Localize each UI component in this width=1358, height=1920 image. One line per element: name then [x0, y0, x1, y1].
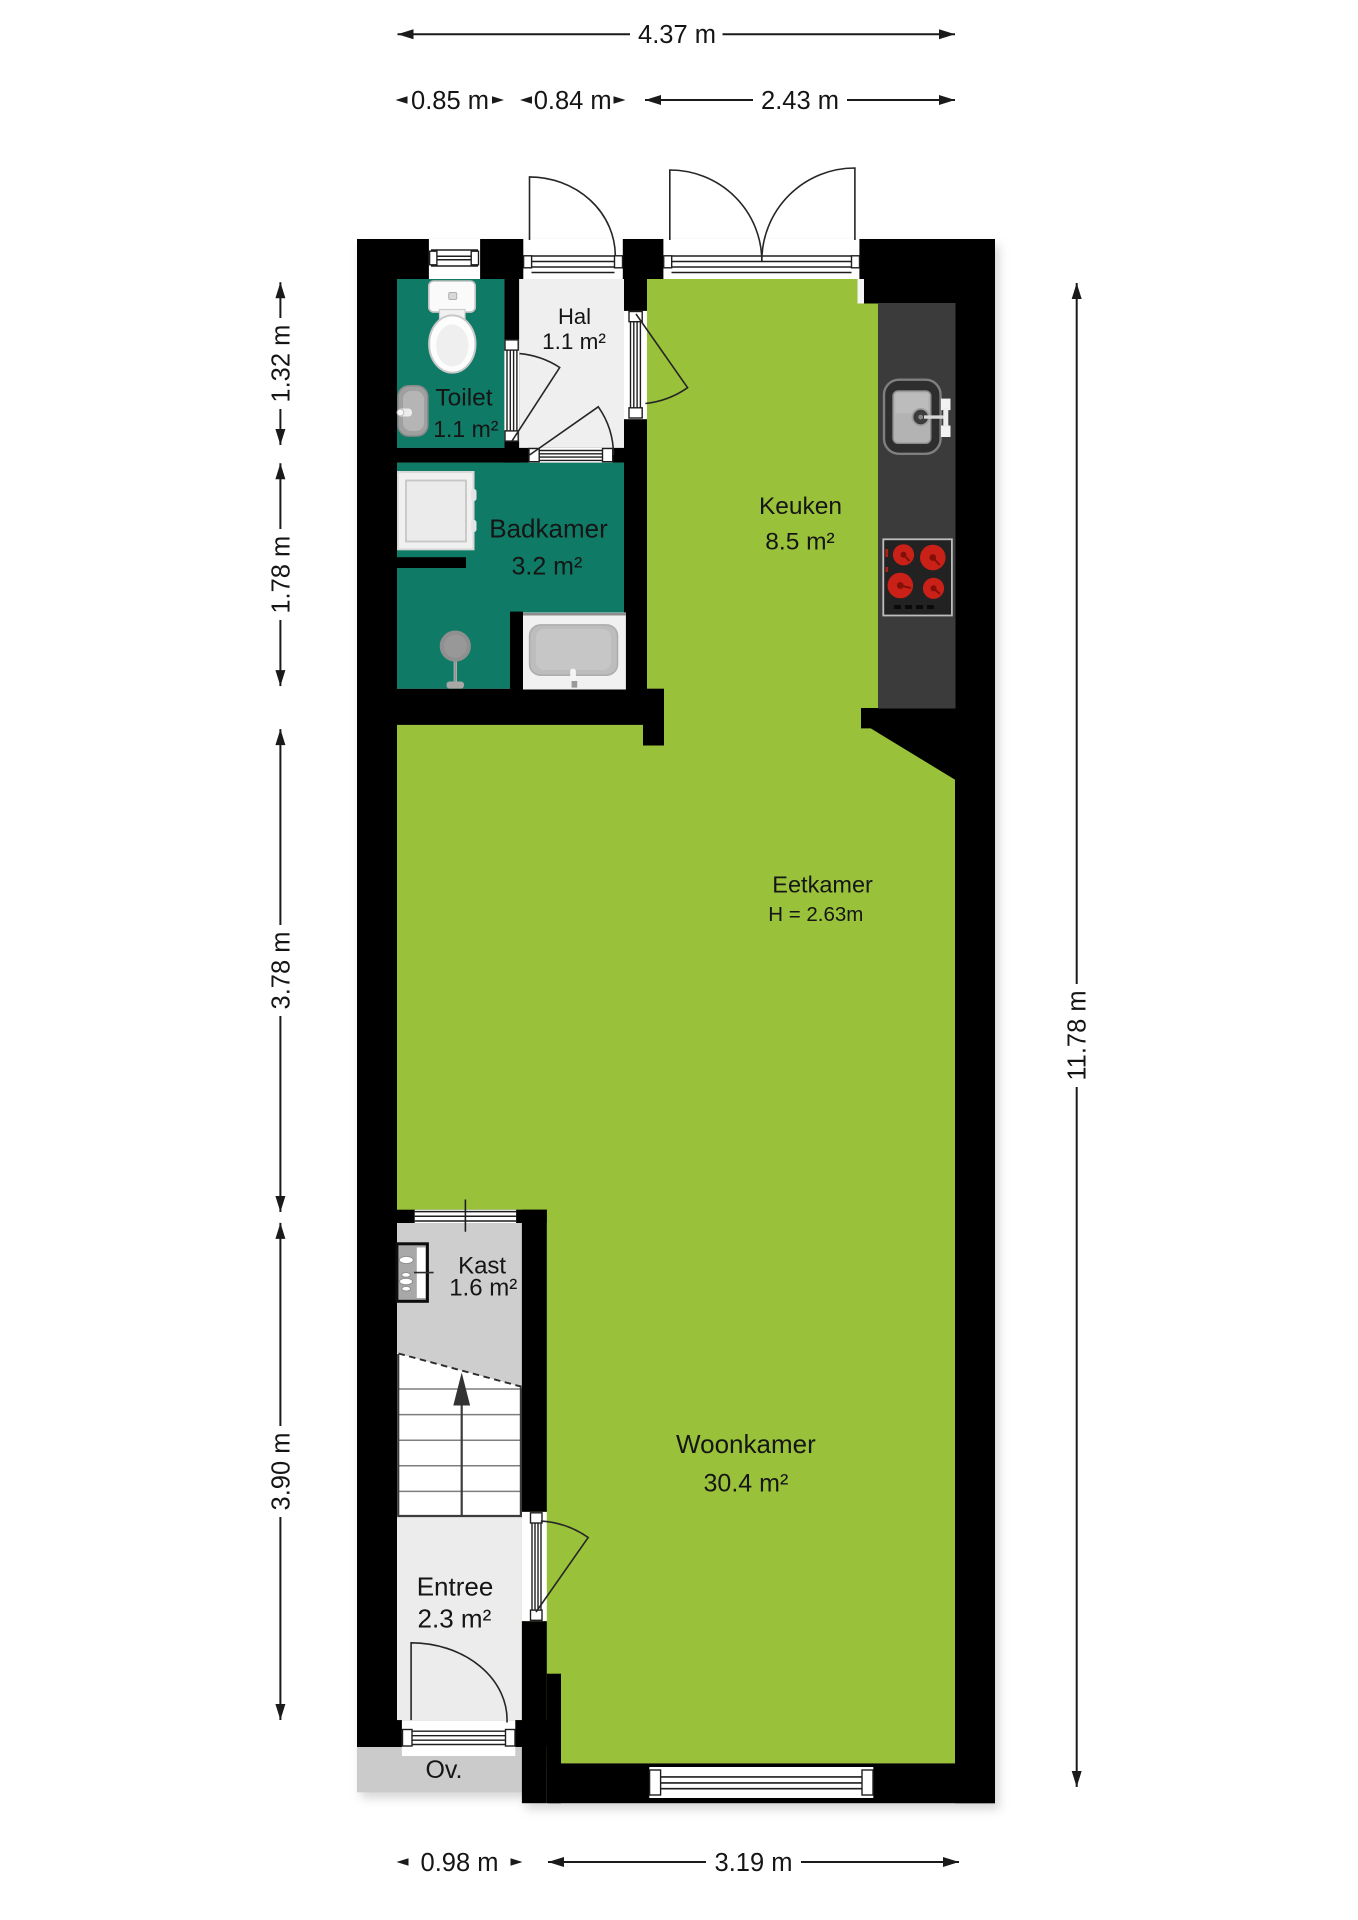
svg-text:4.37 m: 4.37 m — [638, 21, 716, 49]
svg-text:8.5 m²: 8.5 m² — [765, 528, 834, 555]
svg-text:1.32 m: 1.32 m — [267, 325, 295, 403]
svg-text:Woonkamer: Woonkamer — [676, 1429, 816, 1459]
svg-text:1.78 m: 1.78 m — [267, 536, 295, 614]
svg-text:Hal: Hal — [558, 304, 591, 329]
svg-text:Ov.: Ov. — [425, 1756, 462, 1784]
svg-text:0.85 m: 0.85 m — [411, 87, 489, 115]
svg-text:Keuken: Keuken — [759, 493, 842, 520]
svg-text:Entree: Entree — [417, 1571, 494, 1601]
svg-text:3.19 m: 3.19 m — [715, 1849, 793, 1877]
svg-text:2.43 m: 2.43 m — [761, 87, 839, 115]
svg-text:2.3 m²: 2.3 m² — [418, 1603, 492, 1633]
svg-text:3.78 m: 3.78 m — [267, 932, 295, 1010]
svg-text:3.2 m²: 3.2 m² — [511, 553, 582, 581]
svg-text:0.84 m: 0.84 m — [534, 87, 612, 115]
svg-text:H = 2.63m: H = 2.63m — [768, 903, 863, 926]
svg-text:Eetkamer: Eetkamer — [772, 872, 873, 898]
svg-text:3.90 m: 3.90 m — [267, 1433, 295, 1511]
svg-text:Toilet: Toilet — [435, 385, 492, 412]
svg-text:1.1 m²: 1.1 m² — [542, 329, 606, 354]
svg-text:Badkamer: Badkamer — [489, 513, 608, 543]
svg-text:1.6 m²: 1.6 m² — [449, 1275, 517, 1302]
svg-text:11.78 m: 11.78 m — [1064, 990, 1092, 1080]
svg-text:1.1 m²: 1.1 m² — [433, 416, 499, 442]
svg-text:30.4 m²: 30.4 m² — [704, 1469, 789, 1497]
svg-text:0.98 m: 0.98 m — [421, 1849, 499, 1877]
